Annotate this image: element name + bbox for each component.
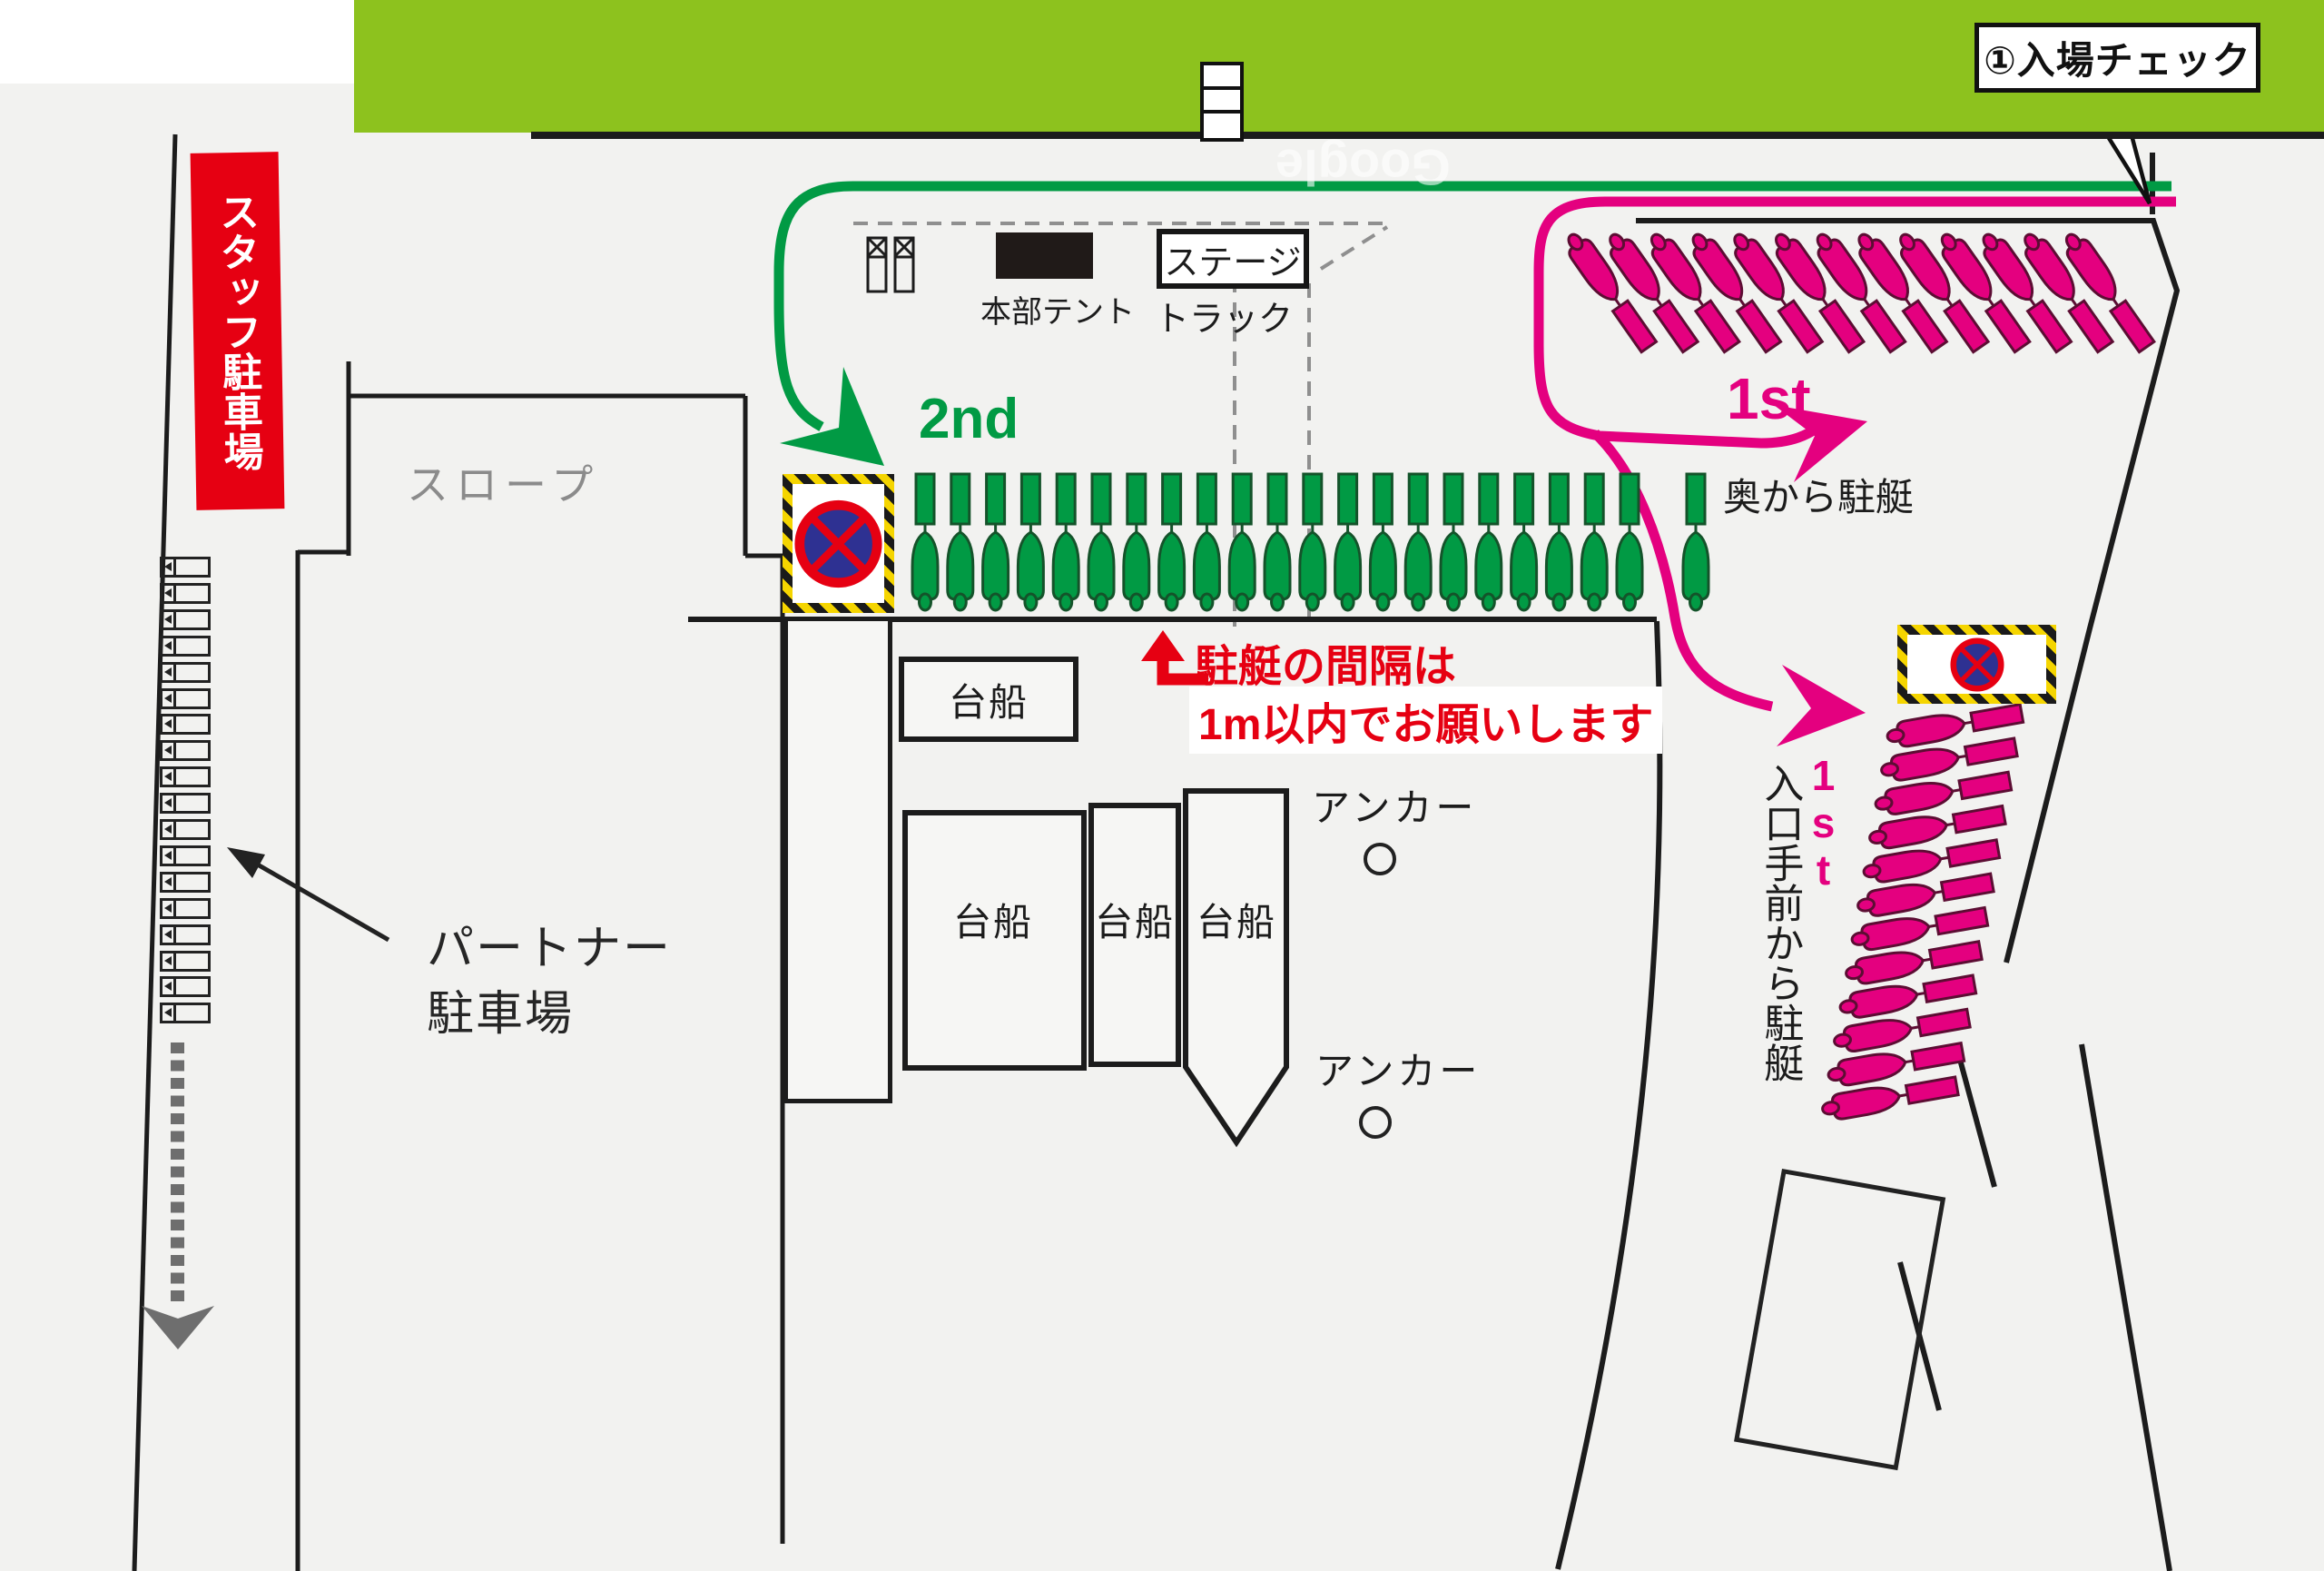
stacked-container-icon bbox=[1200, 62, 1244, 142]
route-2nd-arrowhead bbox=[780, 367, 884, 466]
no-stopping-sign-icon bbox=[783, 474, 894, 613]
boat-icon bbox=[1018, 474, 1043, 610]
tent-icon-brace bbox=[895, 238, 913, 257]
road-direction-dash bbox=[171, 1078, 184, 1089]
barge-label: 台船 bbox=[1094, 892, 1176, 947]
barge-label: 台船 bbox=[1191, 892, 1282, 947]
partner-arrow-line bbox=[243, 856, 389, 940]
boat-icon bbox=[1370, 474, 1395, 610]
parking-space bbox=[160, 924, 211, 945]
road-direction-arrowhead bbox=[142, 1306, 214, 1349]
road-direction-dash bbox=[171, 1184, 184, 1195]
parking-space bbox=[160, 557, 211, 578]
road-direction-dash bbox=[171, 1273, 184, 1284]
road-direction-dash bbox=[171, 1061, 184, 1072]
pier-block bbox=[783, 617, 892, 1103]
staff-parking-label: スタッフ駐車場 bbox=[212, 191, 263, 471]
no-stopping-sign-icon bbox=[1897, 625, 2056, 704]
parking-space bbox=[160, 636, 211, 657]
boat-icon bbox=[1159, 474, 1185, 610]
road-direction-dash bbox=[171, 1131, 184, 1142]
top-left-white-area bbox=[0, 0, 354, 84]
boat-icon bbox=[1053, 474, 1078, 610]
road-direction-dash bbox=[171, 1149, 184, 1160]
hq-tent-label: 本部テント bbox=[980, 287, 1135, 331]
boat-icon bbox=[1124, 474, 1149, 610]
partner-parking-label-line1: パートナー bbox=[427, 910, 672, 978]
misc-marks bbox=[868, 238, 913, 291]
no-stopping-glyph bbox=[793, 497, 884, 591]
boat-icon bbox=[1300, 474, 1325, 610]
boat-icon bbox=[1617, 474, 1642, 610]
parking-space bbox=[160, 583, 211, 604]
satellite-watermark: Google bbox=[1275, 138, 1451, 197]
road-direction-dash bbox=[171, 1042, 184, 1053]
boat-icon bbox=[1229, 474, 1255, 610]
road-direction-dash bbox=[171, 1096, 184, 1107]
boundary-line bbox=[2082, 1044, 2170, 1571]
road-direction-dash bbox=[171, 1113, 184, 1124]
barge-label: 台船 bbox=[949, 672, 1029, 727]
parking-space bbox=[160, 740, 211, 761]
barge-label: 台船 bbox=[948, 892, 1039, 947]
slope-label: スロープ bbox=[407, 452, 600, 512]
stage-label: ステージ bbox=[1164, 234, 1301, 284]
park-from-back-label: 奥から駐艇 bbox=[1723, 467, 1914, 522]
anchor-label: アンカー bbox=[1315, 1041, 1481, 1096]
boat-icon bbox=[912, 474, 938, 610]
boat-icon bbox=[1546, 474, 1571, 610]
parking-space bbox=[160, 951, 211, 972]
spacing-note-arrowhead bbox=[1141, 630, 1185, 661]
boat-icon bbox=[1476, 474, 1502, 610]
park-from-entrance-label: 入口手前から駐艇 bbox=[1759, 763, 1800, 1108]
spacing-note-line2: 1m以内でお願いします bbox=[1189, 687, 1662, 754]
route-1st-lower-arrowhead bbox=[1777, 665, 1866, 746]
parking-space bbox=[160, 872, 211, 893]
no-stopping-sign-face bbox=[793, 484, 884, 603]
road-direction-dash bbox=[171, 1238, 184, 1249]
partner-arrowhead bbox=[227, 847, 265, 878]
parking-space bbox=[160, 1003, 211, 1023]
boat-icon bbox=[1335, 474, 1361, 610]
hq-tent-block bbox=[996, 232, 1093, 279]
entrance-check-label: ①入場チェック bbox=[1984, 30, 2251, 85]
parking-space bbox=[160, 845, 211, 866]
boat-icon bbox=[1441, 474, 1466, 610]
boat-icon bbox=[948, 474, 973, 610]
parking-space bbox=[160, 714, 211, 735]
parking-space bbox=[160, 688, 211, 709]
venue-map: ①入場チェック スタッフ駐車場 本部テント ステージ トラック bbox=[0, 0, 2324, 1571]
no-stopping-glyph bbox=[1949, 637, 2005, 693]
road-direction-dash bbox=[171, 1255, 184, 1266]
boundary-line bbox=[1558, 621, 1659, 1569]
parking-space bbox=[160, 793, 211, 814]
barge-pentagon bbox=[1186, 791, 1286, 1142]
boundary-line bbox=[1959, 1056, 1994, 1187]
road-direction-dash bbox=[171, 1220, 184, 1230]
boat-icon bbox=[1405, 474, 1431, 610]
dashed-line bbox=[1321, 227, 1387, 269]
parking-space bbox=[160, 609, 211, 630]
stage-box: ステージ bbox=[1157, 229, 1309, 289]
spacing-note-line1: 駐艇の間隔は bbox=[1195, 630, 1456, 694]
parking-space bbox=[160, 819, 211, 840]
tent-icon-brace bbox=[868, 238, 886, 257]
second-route-label: 2nd bbox=[919, 387, 1019, 451]
first-route-upper-label: 1st bbox=[1727, 365, 1811, 432]
entrance-check-callout: ①入場チェック bbox=[1974, 23, 2260, 93]
boat-icon bbox=[1194, 474, 1219, 610]
stage-truck-label: トラック bbox=[1151, 291, 1296, 341]
partner-parking-label-line2: 駐車場 bbox=[427, 975, 574, 1043]
boat-icon bbox=[1683, 474, 1709, 610]
parking-space bbox=[160, 766, 211, 787]
boat-icon bbox=[1088, 474, 1114, 610]
anchor-point-icon bbox=[1364, 843, 1396, 875]
road-direction-dash bbox=[171, 1290, 184, 1301]
road-direction-dash bbox=[171, 1202, 184, 1213]
first-route-lower-label: 1st bbox=[1800, 752, 1846, 894]
boat-icon bbox=[983, 474, 1009, 610]
road-direction-dash bbox=[171, 1167, 184, 1178]
staff-parking-banner: スタッフ駐車場 bbox=[191, 152, 285, 510]
parking-space bbox=[160, 662, 211, 683]
parking-space bbox=[160, 898, 211, 919]
anchor-point-icon bbox=[1359, 1106, 1392, 1139]
boat-icon bbox=[1265, 474, 1290, 610]
no-stopping-sign-face bbox=[1907, 635, 2046, 694]
boat-icon bbox=[1581, 474, 1607, 610]
barge-box: 台船 bbox=[899, 657, 1078, 742]
anchor-label: アンカー bbox=[1312, 777, 1477, 833]
parking-space bbox=[160, 976, 211, 997]
boat-icon bbox=[1512, 474, 1537, 610]
